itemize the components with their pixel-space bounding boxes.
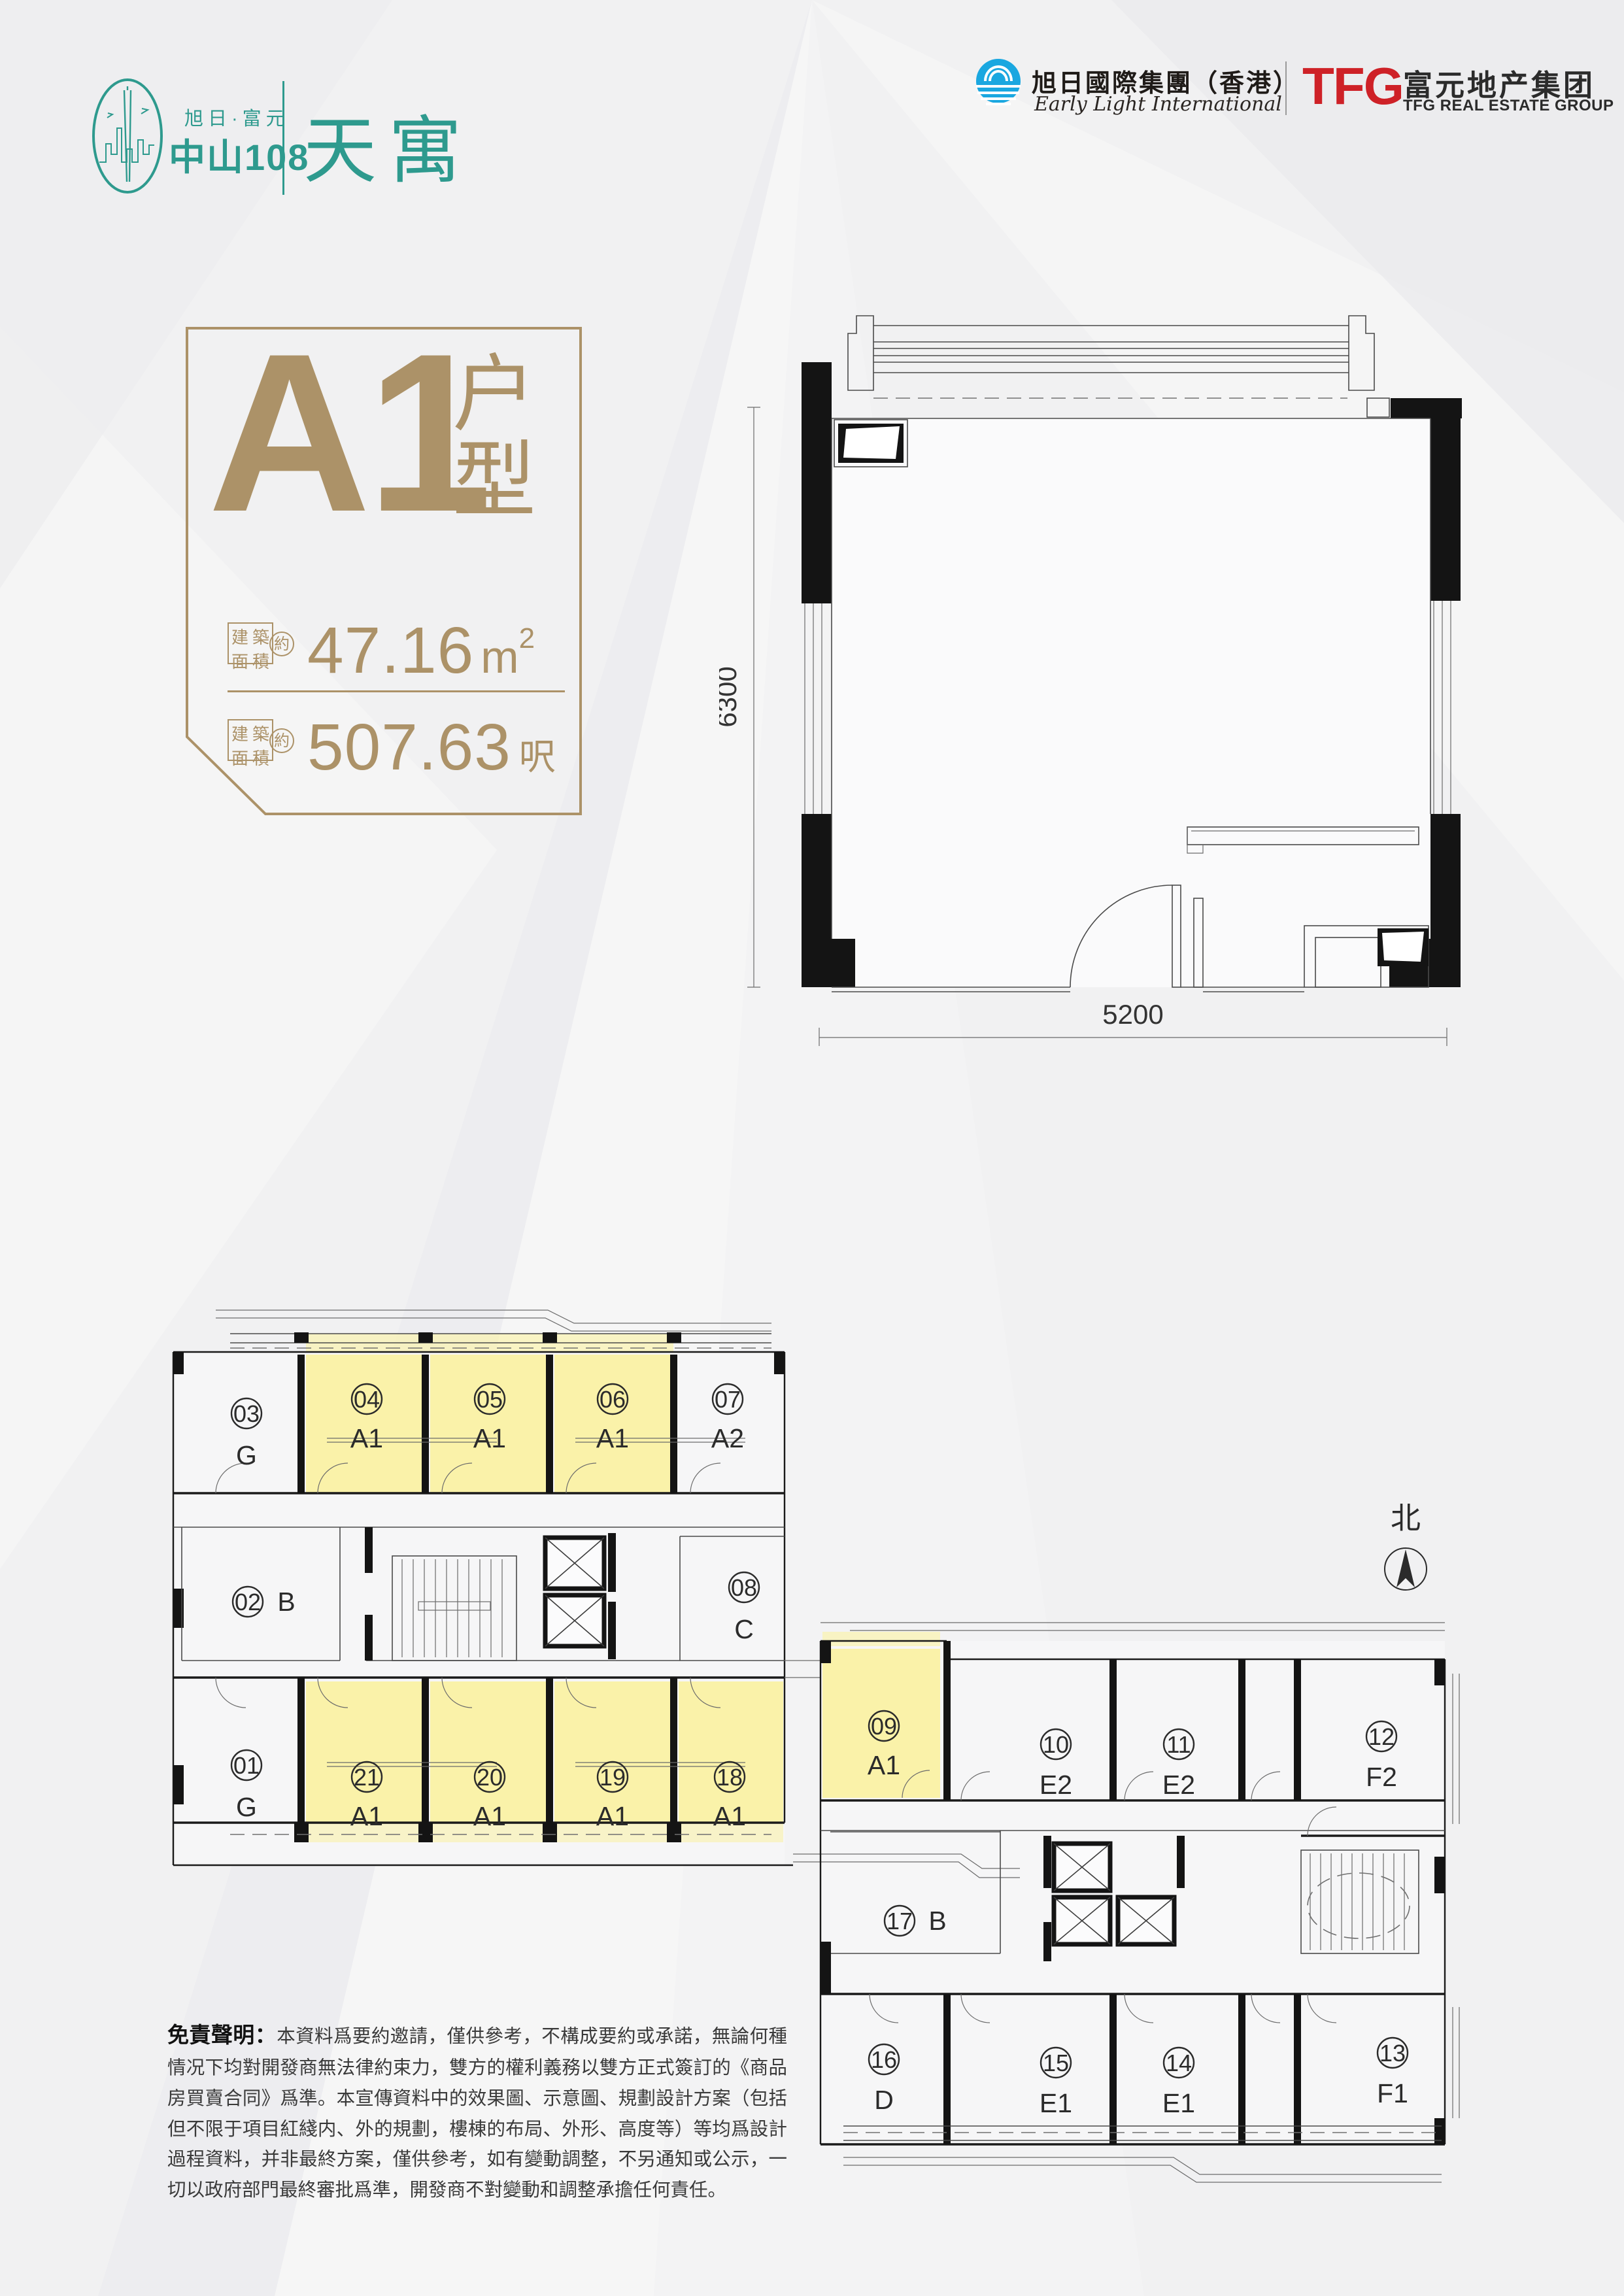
svg-text:E2: E2 <box>1040 1770 1072 1800</box>
svg-text:05: 05 <box>477 1386 503 1413</box>
gfa-sqft-number: 507.63 <box>307 710 511 785</box>
approx-badge-sqft: 約 <box>269 728 294 753</box>
svg-text:E1: E1 <box>1162 2088 1195 2118</box>
svg-text:08: 08 <box>731 1574 757 1601</box>
dim-width-label: 5200 <box>1102 999 1163 1030</box>
gfa-char: 建 <box>231 624 248 649</box>
unit-type-code: A1 <box>208 320 488 546</box>
brand-tagline: 旭日·富元 <box>184 103 290 131</box>
early-light-sun-icon <box>974 56 1023 107</box>
gfa-sqm-unit: m <box>481 631 518 683</box>
svg-text:07: 07 <box>715 1386 741 1413</box>
gfa-char: 面 <box>231 745 248 769</box>
svg-text:18: 18 <box>717 1764 743 1791</box>
svg-text:F2: F2 <box>1366 1762 1397 1792</box>
gfa-char: 積 <box>252 745 269 769</box>
svg-text:E1: E1 <box>1040 2088 1072 2118</box>
svg-text:B: B <box>928 1906 946 1936</box>
svg-text:10: 10 <box>1043 1731 1069 1758</box>
gfa-char: 建 <box>231 721 248 745</box>
gfa-char: 築 <box>252 624 269 649</box>
svg-text:A2: A2 <box>711 1423 744 1453</box>
gfa-char: 面 <box>231 649 248 673</box>
svg-text:A1: A1 <box>473 1423 506 1453</box>
svg-text:北: 北 <box>1391 1501 1421 1535</box>
svg-text:09: 09 <box>871 1713 897 1740</box>
svg-text:C: C <box>734 1614 754 1644</box>
svg-text:F1: F1 <box>1377 2078 1408 2108</box>
gfa-sqft-unit: 呎 <box>519 728 556 781</box>
brand-divider <box>282 81 284 195</box>
svg-text:15: 15 <box>1043 2050 1069 2076</box>
gfa-sqm-number: 47.16 <box>307 613 474 688</box>
brand-name: 中山108 <box>169 128 309 181</box>
svg-text:20: 20 <box>477 1764 503 1791</box>
gfa-char: 築 <box>252 721 269 745</box>
badge-divider-rule <box>228 690 565 692</box>
svg-text:G: G <box>236 1792 257 1822</box>
disclaimer-text: 免責聲明：本資料爲要約邀請，僅供參考，不構成要約或承諾，無論何種情况下均對開發商… <box>167 2017 787 2206</box>
svg-text:A1: A1 <box>350 1423 383 1453</box>
unit-type-suffix-bottom: 型 <box>452 439 536 523</box>
svg-text:12: 12 <box>1368 1723 1395 1750</box>
svg-text:D: D <box>874 2085 894 2115</box>
unit-floor-plan: 6300 5200 <box>719 288 1478 1059</box>
approx-badge-sqm: 約 <box>269 632 294 656</box>
gfa-char: 積 <box>252 649 269 673</box>
svg-text:B: B <box>277 1587 295 1617</box>
svg-text:A1: A1 <box>596 1423 629 1453</box>
svg-text:16: 16 <box>871 2046 897 2073</box>
developer-logo-divider <box>1285 61 1287 115</box>
tfg-name-en: TFG REAL ESTATE GROUP <box>1403 97 1614 115</box>
flyer-page: 旭日·富元 中山108 天寓 旭日國際集團（香港） Early Light In… <box>0 0 1624 2296</box>
svg-text:06: 06 <box>600 1386 626 1413</box>
svg-text:03: 03 <box>233 1400 260 1427</box>
gfa-value-sqm: 47.16 m 2 <box>307 613 535 688</box>
svg-text:01: 01 <box>233 1752 260 1779</box>
unit-type-suffix-top: 户 <box>452 353 536 437</box>
tfg-logo-text: TFG <box>1302 60 1403 112</box>
brand-product-name: 天寓 <box>303 92 473 197</box>
gfa-sqm-sup: 2 <box>519 622 535 655</box>
early-light-name-en: Early Light International <box>1034 93 1282 116</box>
svg-text:13: 13 <box>1379 2040 1406 2067</box>
svg-text:A1: A1 <box>868 1750 900 1780</box>
disclaimer-body: 本資料爲要約邀請，僅供參考，不構成要約或承諾，無論何種情况下均對開發商無法律約束… <box>167 2026 787 2201</box>
gfa-value-sqft: 507.63 呎 <box>307 710 556 785</box>
svg-text:A1: A1 <box>596 1801 629 1831</box>
svg-text:G: G <box>236 1440 257 1470</box>
dim-height-label: 6300 <box>719 666 742 727</box>
plan-drawing: 6300 5200 <box>719 316 1462 1046</box>
svg-text:A1: A1 <box>473 1801 506 1831</box>
svg-text:19: 19 <box>600 1764 626 1791</box>
svg-text:A1: A1 <box>350 1801 383 1831</box>
svg-text:14: 14 <box>1166 2050 1192 2076</box>
project-logo-icon <box>92 77 163 195</box>
svg-text:21: 21 <box>354 1764 380 1791</box>
svg-text:11: 11 <box>1166 1731 1191 1758</box>
gfa-label-sqm: 建築面積 <box>228 622 273 664</box>
disclaimer-title: 免責聲明： <box>167 2023 277 2047</box>
svg-text:02: 02 <box>235 1589 261 1615</box>
svg-text:A1: A1 <box>713 1801 746 1831</box>
svg-text:04: 04 <box>354 1386 380 1413</box>
north-arrow: 北 <box>1385 1501 1427 1590</box>
svg-text:E2: E2 <box>1162 1770 1195 1800</box>
gfa-label-sqft: 建築面積 <box>228 719 273 761</box>
svg-text:17: 17 <box>887 1908 913 1934</box>
